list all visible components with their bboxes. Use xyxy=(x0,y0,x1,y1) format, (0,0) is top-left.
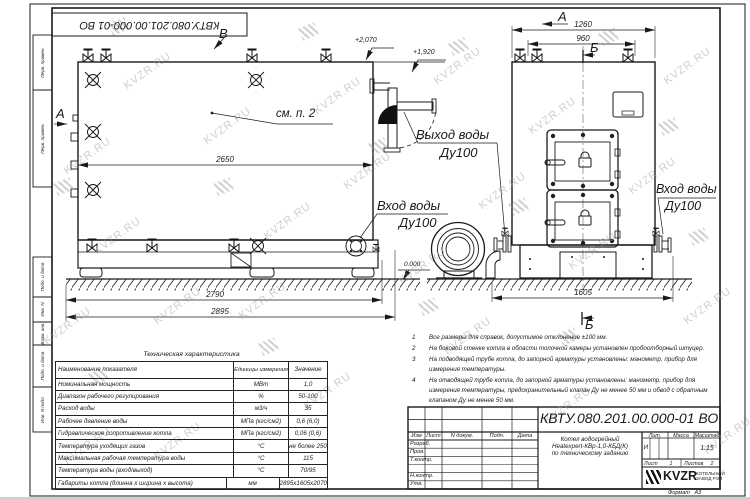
product-name-line1: Котел водогрейный xyxy=(539,436,641,443)
note-number: 3 xyxy=(412,355,429,374)
note-number: 4 xyxy=(412,376,429,405)
tb-sign-prov: Пров. xyxy=(410,449,425,455)
row-unit: МПа (кгс/см2) xyxy=(234,428,289,439)
row-unit: % xyxy=(234,391,289,402)
view-b-label: В xyxy=(219,26,228,41)
margin-stamp: Перв. примен. xyxy=(33,35,52,90)
margin-stamp: Перв. примен. xyxy=(33,90,52,187)
tb-sign-utv: Утв. xyxy=(410,481,423,487)
row-value: 0,6 (6,0) xyxy=(289,416,327,427)
tech-table-title: Техническая характеристика xyxy=(55,351,328,358)
margin-stamp: Инв. N подл. xyxy=(33,387,52,432)
table-row: Температура воды (вход/выход)°С70/95 xyxy=(56,464,327,476)
margin-stamp: Инв. N дубл. xyxy=(33,297,52,322)
callout-see-note-2: см. п. 2 xyxy=(276,108,315,120)
tech-table: Наименование показателя Единицы измерени… xyxy=(55,361,328,490)
doc-number: КВТУ.080.201.00.000-01 ВО xyxy=(540,410,718,426)
outlet-water-dn: Ду100 xyxy=(440,145,478,160)
note-number: 1 xyxy=(412,333,429,343)
table-row: Габариты котла (длинна х ширина х высота… xyxy=(56,477,327,489)
row-value: 115 xyxy=(289,453,327,464)
tb-header-mass: Масса xyxy=(668,433,694,439)
kvzr-logo-icon xyxy=(646,470,661,484)
tb-sign-razrab: Разраб. xyxy=(410,441,430,447)
tb-header-izm: Изм xyxy=(408,433,425,439)
note-item: 3На подводящей трубе котла, до запорной … xyxy=(412,355,715,374)
dim-2790: 2790 xyxy=(185,290,245,299)
row-name: Номинальная мощность xyxy=(56,379,234,390)
elevation-top: +2,070 xyxy=(355,37,377,44)
table-row: Максимальная рабочая температура воды°С1… xyxy=(56,452,327,464)
dim-960: 960 xyxy=(560,34,606,43)
note-number: 2 xyxy=(412,344,429,354)
outlet-water-label: Выход воды xyxy=(416,127,489,142)
tb-scale-value: 1:15 xyxy=(694,445,720,452)
row-name: Рабочее давление воды xyxy=(56,416,234,427)
row-unit: °С xyxy=(234,440,289,451)
row-name: Температура уходящих газов xyxy=(56,440,234,451)
note-text: На подводящей трубе котла, до запорной а… xyxy=(429,355,715,374)
dim-1260: 1260 xyxy=(560,20,606,29)
row-unit: °С xyxy=(234,465,289,476)
col-header-units: Единицы измерения xyxy=(234,362,289,378)
dim-2895: 2895 xyxy=(190,307,250,316)
boiler-front-view xyxy=(486,46,671,290)
row-value: не более 250 xyxy=(289,440,327,451)
tb-header-podp: Подп. xyxy=(482,433,512,439)
tb-header-ndoc: N докум. xyxy=(442,433,482,439)
row-name: Диапазон рабочего регулирования xyxy=(56,391,234,402)
col-header-value: Значение xyxy=(289,362,327,378)
table-row: Расход водым3/ч35 xyxy=(56,402,327,414)
tb-header-scale: Масштаб xyxy=(694,433,720,439)
table-row: Рабочее давление водыМПа (кгс/см2)0,6 (6… xyxy=(56,415,327,427)
table-row: Номинальная мощностьМВт1,0 xyxy=(56,378,327,390)
row-unit: м3/ч xyxy=(234,403,289,414)
inlet-water-side-dn: Ду100 xyxy=(399,215,437,230)
elevation-outlet: +1,920 xyxy=(413,49,435,56)
dim-1605: 1605 xyxy=(555,288,611,297)
row-unit: мм xyxy=(227,478,280,489)
row-name: Максимальная рабочая температура воды xyxy=(56,453,234,464)
format-label: Формат xyxy=(668,490,690,496)
row-value: 70/95 xyxy=(289,465,327,476)
margin-stamp: Подп. и дата xyxy=(33,257,52,297)
section-b-bottom-label: Б xyxy=(585,317,593,332)
note-item: 2На боковой стенке котла в области топоч… xyxy=(412,344,715,354)
margin-stamp: Подп. и дата xyxy=(33,345,52,387)
inlet-water-front-dn: Ду100 xyxy=(665,199,701,213)
company-name-line2: ЗАВОД РЭП xyxy=(696,476,725,481)
boiler-side-view xyxy=(71,50,445,278)
row-value: 35 xyxy=(289,403,327,414)
blower-fan xyxy=(432,223,485,279)
tb-sign-tkontr: Т.контр. xyxy=(410,457,433,463)
kvzr-logo-text: KVZR xyxy=(663,469,697,483)
note-text: На отводящей трубе котла, до запорной ар… xyxy=(429,376,715,405)
row-unit: °С xyxy=(234,453,289,464)
upper-furnace-door xyxy=(545,130,620,190)
note-text: Все размеры для справок, допустимое откл… xyxy=(429,333,715,343)
product-name-line2: Heatexpert-КВр-1,0-КБД(К) xyxy=(539,443,641,450)
note-text: На боковой стенке котла в области топочн… xyxy=(429,344,715,354)
tb-header-data: Дата xyxy=(512,433,538,439)
row-value: 2895х1605х2070 xyxy=(280,478,327,489)
note-item: 4На отводящей трубе котла, до запорной а… xyxy=(412,376,715,405)
tb-header-lit: Лит. xyxy=(642,433,668,439)
note-item: 1Все размеры для справок, допустимое отк… xyxy=(412,333,715,343)
tb-lit-value: И xyxy=(641,444,651,451)
row-value: 50-100 xyxy=(289,391,327,402)
row-name: Гидравлическое сопротивление котла xyxy=(56,428,234,439)
company-name: КОТЕЛЬНЫЙ ЗАВОД РЭП xyxy=(696,471,725,482)
row-name: Температура воды (вход/выход) xyxy=(56,465,234,476)
product-name-line3: по техническому заданию xyxy=(539,450,641,457)
view-a-side-label: А xyxy=(56,106,65,121)
col-header-name: Наименование показателя xyxy=(56,362,234,378)
drawing-sheet: KVZR.RU KVZR.RU KVZR.RU KVZR.RU KVZR.RU … xyxy=(0,0,750,500)
format-note: Формат А3 xyxy=(668,490,701,496)
doc-number-top-margin: КВТУ.080.201.00.000-01 ВО xyxy=(52,13,247,36)
tech-table-header: Наименование показателя Единицы измерени… xyxy=(56,362,327,378)
notes-list: 1Все размеры для справок, допустимое отк… xyxy=(412,333,715,407)
tb-sheets-label: Листов xyxy=(684,461,703,467)
tb-header-list: Лист xyxy=(425,433,442,439)
inlet-water-side-label: Вход воды xyxy=(377,198,440,213)
row-name: Габариты котла (длинна х ширина х высота… xyxy=(56,478,227,489)
margin-stamp: Взам. инв. N xyxy=(33,322,52,345)
row-value: 1,0 xyxy=(289,379,327,390)
row-value: 0,06 (0,6) xyxy=(289,428,327,439)
format-value: А3 xyxy=(694,490,701,496)
elevation-zero: 0.000 xyxy=(404,261,420,268)
row-unit: МПа (кгс/см2) xyxy=(234,416,289,427)
inlet-water-front-label: Вход воды xyxy=(656,182,717,196)
lower-furnace-door xyxy=(545,190,620,247)
tb-sheet-value: 1 xyxy=(664,461,678,467)
dim-2650: 2650 xyxy=(195,155,255,164)
product-name: Котел водогрейный Heatexpert-КВр-1,0-КБД… xyxy=(539,436,641,457)
table-row: Температура уходящих газов°Сне более 250 xyxy=(56,439,327,451)
tb-sheet-label: Лист xyxy=(644,461,658,467)
tb-sheets-value: 2 xyxy=(706,461,718,467)
row-unit: МВт xyxy=(234,379,289,390)
table-row: Гидравлическое сопротивление котлаМПа (к… xyxy=(56,427,327,439)
row-name: Расход воды xyxy=(56,403,234,414)
tb-sign-nkontr: Н.контр. xyxy=(410,473,434,479)
table-row: Диапазон рабочего регулирования%50-100 xyxy=(56,390,327,402)
